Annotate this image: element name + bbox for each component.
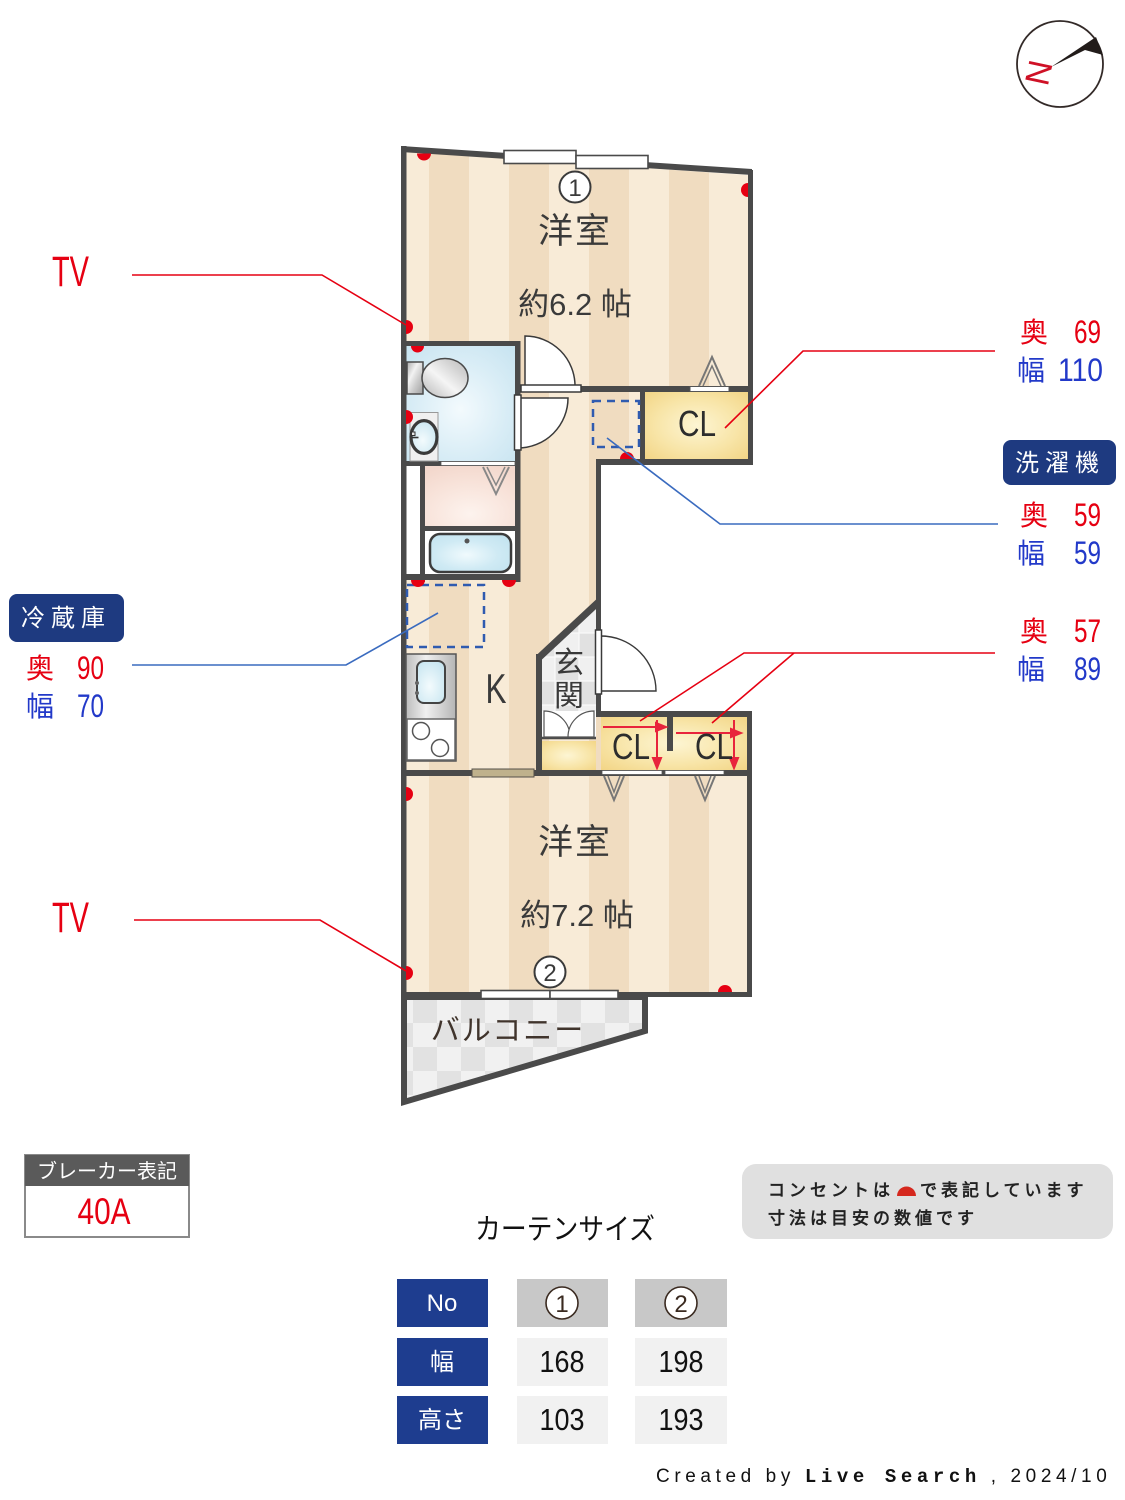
svg-text:2: 2 xyxy=(674,1291,687,1318)
svg-text:40A: 40A xyxy=(78,1191,131,1232)
svg-text:約6.2 帖: 約6.2 帖 xyxy=(518,287,632,322)
svg-text:110: 110 xyxy=(1058,352,1103,388)
svg-text:CL: CL xyxy=(678,403,716,444)
svg-text:Created by Live Search , 2024/: Created by Live Search , 2024/10 xyxy=(656,1466,1111,1488)
svg-text:洋室: 洋室 xyxy=(538,823,612,862)
svg-text:冷蔵庫: 冷蔵庫 xyxy=(21,605,111,632)
svg-text:59: 59 xyxy=(1074,497,1101,533)
svg-text:90: 90 xyxy=(77,650,104,686)
svg-text:幅: 幅 xyxy=(1017,654,1045,685)
svg-text:59: 59 xyxy=(1074,535,1101,571)
svg-text:69: 69 xyxy=(1074,314,1101,350)
svg-text:K: K xyxy=(486,665,507,712)
svg-text:TV: TV xyxy=(52,894,89,942)
svg-text:幅: 幅 xyxy=(26,691,54,722)
svg-text:コンセントは: コンセントは xyxy=(768,1181,894,1200)
svg-text:幅: 幅 xyxy=(1017,538,1045,569)
svg-text:で表記しています: で表記しています xyxy=(920,1180,1088,1200)
svg-text:57: 57 xyxy=(1074,613,1101,649)
svg-text:168: 168 xyxy=(540,1344,585,1379)
svg-text:約7.2 帖: 約7.2 帖 xyxy=(520,898,634,933)
svg-text:幅: 幅 xyxy=(430,1349,454,1376)
svg-text:CL: CL xyxy=(612,726,650,767)
svg-text:103: 103 xyxy=(540,1402,585,1437)
svg-text:TV: TV xyxy=(52,248,89,296)
svg-text:奥: 奥 xyxy=(1020,500,1048,531)
svg-text:幅: 幅 xyxy=(1017,355,1045,386)
svg-text:ブレーカー表記: ブレーカー表記 xyxy=(37,1159,177,1183)
svg-text:高さ: 高さ xyxy=(418,1407,466,1434)
svg-text:198: 198 xyxy=(659,1344,704,1379)
svg-text:70: 70 xyxy=(77,688,104,724)
svg-text:奥: 奥 xyxy=(26,653,54,684)
svg-text:奥: 奥 xyxy=(1020,317,1048,348)
svg-text:No: No xyxy=(427,1290,458,1317)
svg-text:2: 2 xyxy=(543,960,556,987)
svg-text:CL: CL xyxy=(695,726,733,767)
svg-text:関: 関 xyxy=(554,680,584,713)
svg-text:奥: 奥 xyxy=(1020,616,1048,647)
svg-text:1: 1 xyxy=(568,175,581,202)
svg-text:カーテンサイズ: カーテンサイズ xyxy=(475,1213,655,1246)
svg-text:洗濯機: 洗濯機 xyxy=(1015,450,1105,477)
svg-text:193: 193 xyxy=(659,1402,704,1437)
svg-text:1: 1 xyxy=(555,1291,568,1318)
svg-text:89: 89 xyxy=(1074,651,1101,687)
svg-text:寸法は目安の数値です: 寸法は目安の数値です xyxy=(768,1208,978,1228)
svg-text:バルコニー: バルコニー xyxy=(431,1015,585,1047)
svg-text:玄: 玄 xyxy=(554,647,584,680)
svg-text:洋室: 洋室 xyxy=(538,212,612,251)
